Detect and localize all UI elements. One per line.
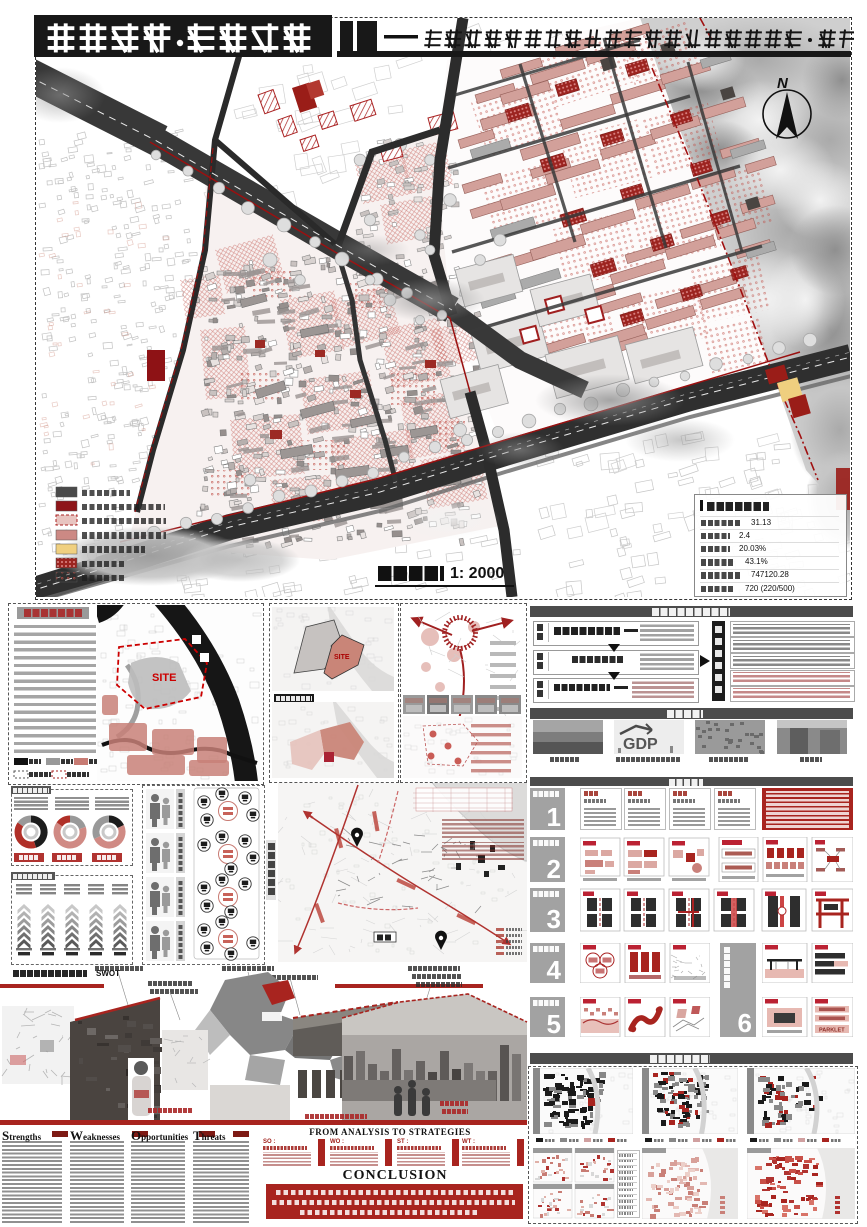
svg-text:GDP: GDP — [623, 736, 658, 753]
svg-text:SITE: SITE — [152, 672, 176, 684]
svg-text:SITE: SITE — [334, 654, 350, 661]
svg-text:PARKLET: PARKLET — [819, 1028, 845, 1034]
svg-text:N: N — [777, 75, 789, 92]
